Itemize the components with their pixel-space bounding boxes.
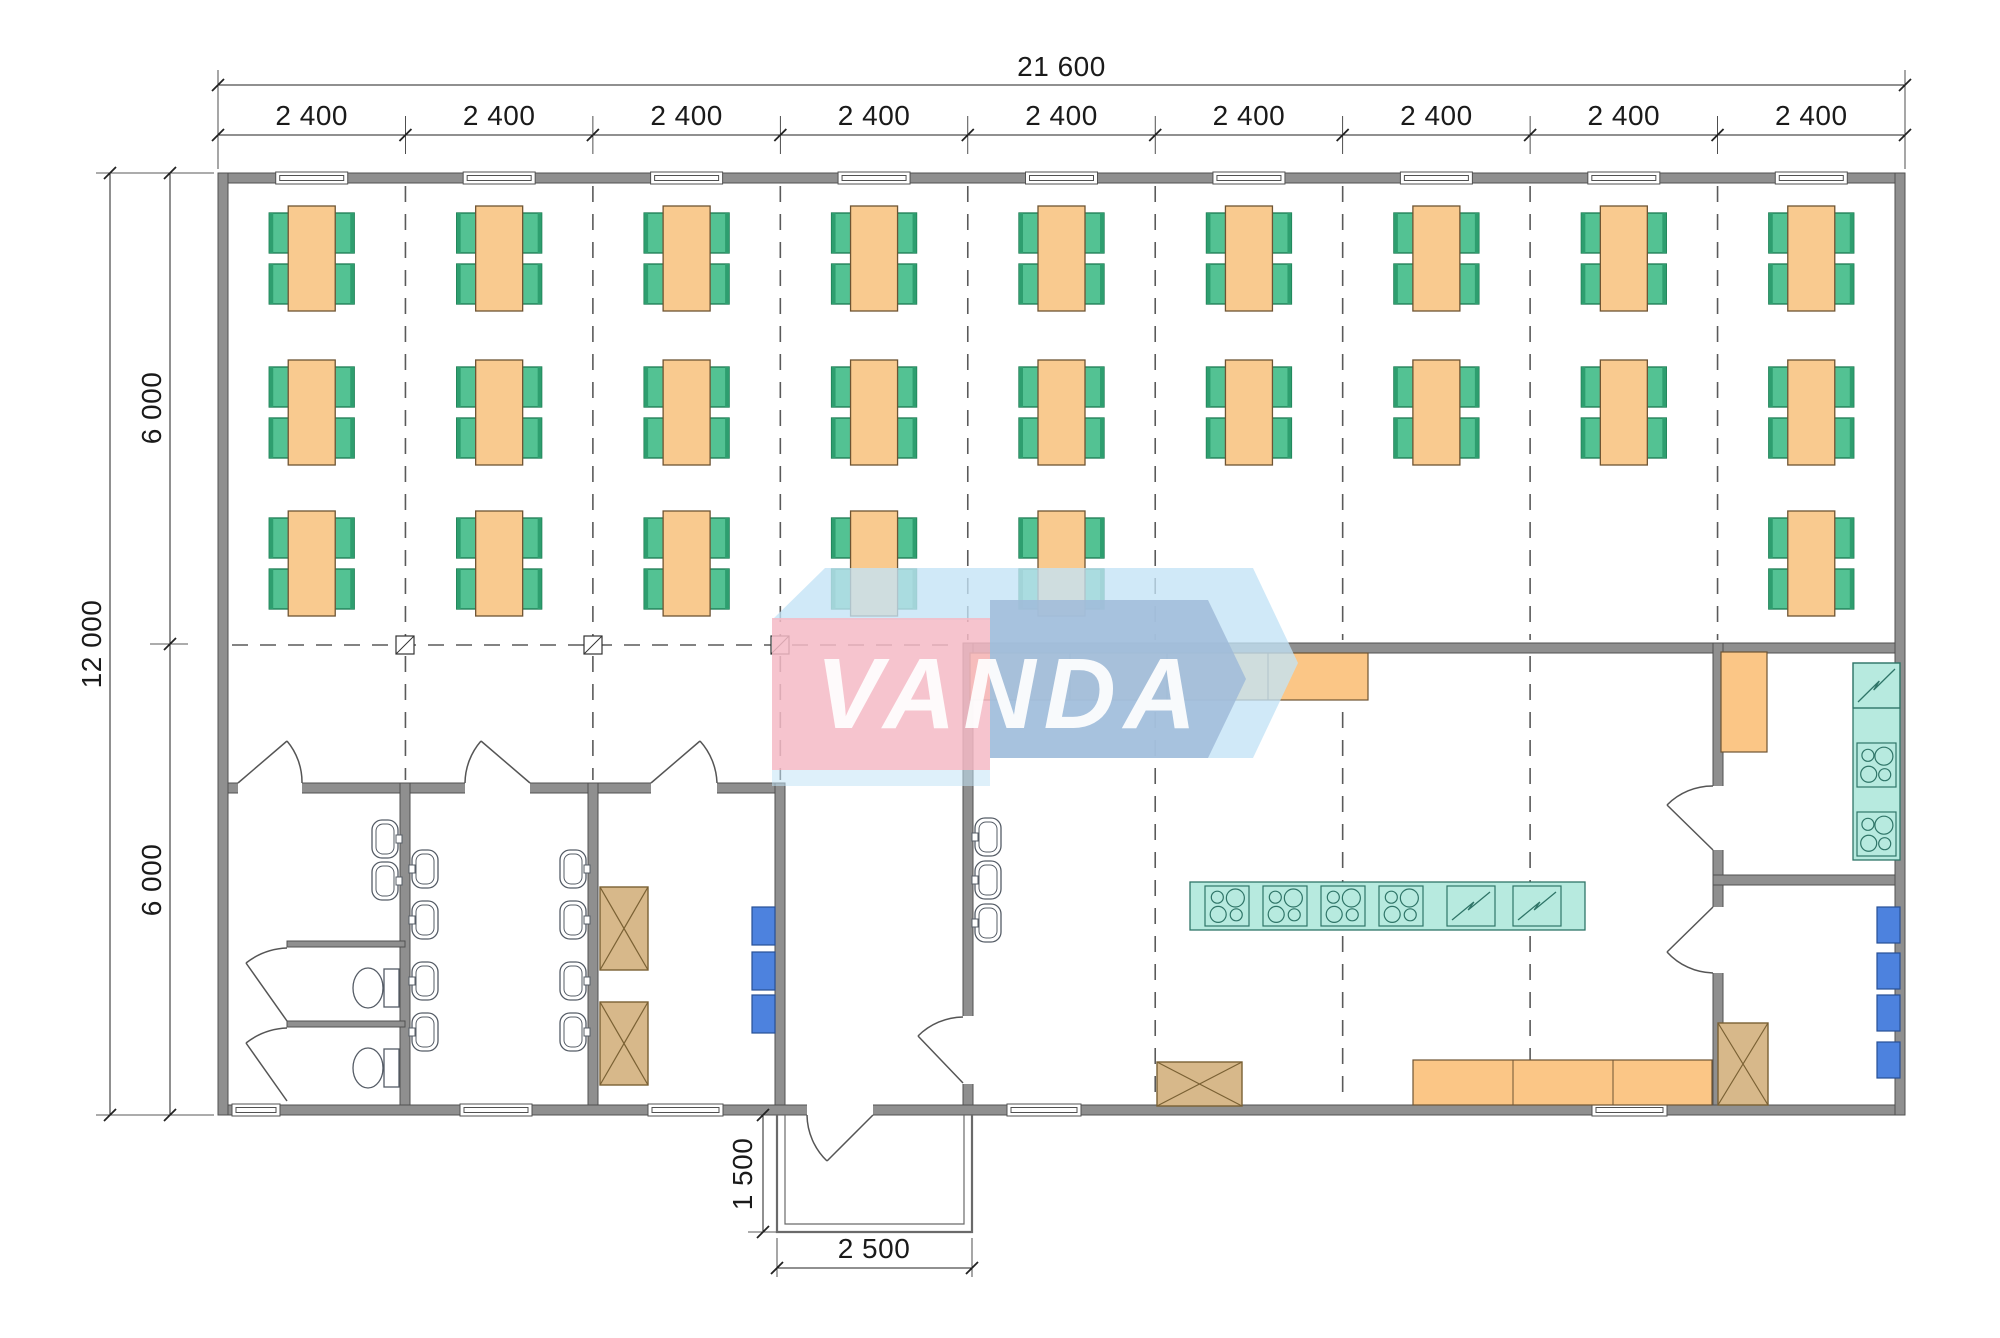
dining-table [1038, 206, 1085, 311]
floor-plan: 21 6002 4002 4002 4002 4002 4002 4002 40… [0, 0, 2000, 1338]
door-leaf [246, 1043, 287, 1101]
door-leaf [1667, 805, 1713, 850]
wall-toilet-stall-1 [287, 941, 405, 947]
dining-table-group [1769, 511, 1854, 616]
blue-cabinet [1877, 995, 1900, 1031]
watermark-backdrop-strip [772, 770, 990, 786]
window [1026, 172, 1098, 184]
chair-backrest [1100, 213, 1104, 253]
wall-partition-washroom [588, 783, 598, 1105]
dimension-label: 2 400 [1213, 100, 1286, 131]
dimension-label: 6 000 [136, 844, 167, 917]
blue-cabinet [1877, 1042, 1900, 1078]
door-main-entrance [807, 1115, 873, 1161]
watermark: VANDA [772, 568, 1298, 786]
wash-basin [409, 1013, 438, 1051]
chair-backrest [1662, 213, 1666, 253]
chair-backrest [350, 569, 354, 609]
chair-backrest [350, 264, 354, 304]
cabinet-storeroom [1721, 652, 1767, 752]
chair-backrest [832, 264, 836, 304]
columns [396, 636, 789, 654]
chair-backrest [1850, 367, 1854, 407]
chair-backrest [1394, 418, 1398, 458]
chair-backrest [1019, 367, 1023, 407]
dining-table-group [1769, 360, 1854, 465]
chair-backrest [1394, 367, 1398, 407]
door-opening [238, 782, 302, 794]
wall-toilet-stall-2 [287, 1021, 405, 1027]
basin-inner [564, 1017, 582, 1047]
window [1007, 1104, 1081, 1116]
chair-backrest [1019, 264, 1023, 304]
chair-backrest [1850, 213, 1854, 253]
door-washroom [465, 741, 530, 783]
tap [972, 833, 978, 841]
window [838, 172, 910, 184]
dining-table-group [269, 511, 354, 616]
wash-basin [560, 1013, 590, 1051]
chair-backrest [1019, 518, 1023, 558]
tap [409, 1028, 415, 1036]
dimension-label: 2 400 [838, 100, 911, 131]
door-kitchen [918, 1017, 963, 1083]
basin-inner [979, 908, 997, 938]
chair-backrest [1769, 213, 1773, 253]
tap [584, 977, 590, 985]
dining-table-group [1206, 360, 1291, 465]
chair-backrest [1475, 213, 1479, 253]
chair-backrest [1769, 367, 1773, 407]
door-swing-arc [287, 741, 302, 783]
crate [1157, 1062, 1242, 1106]
wash-basin [409, 901, 438, 939]
chair-backrest [1475, 367, 1479, 407]
counter-bottom-run [1413, 1060, 1712, 1105]
dining-table-group [1769, 206, 1854, 311]
chair-backrest [913, 367, 917, 407]
basin-inner [376, 824, 394, 854]
chair-backrest [1475, 264, 1479, 304]
chair-backrest [644, 264, 648, 304]
chair-backrest [1850, 569, 1854, 609]
dining-table [288, 511, 335, 616]
chair-backrest [832, 518, 836, 558]
dining-table-group [457, 511, 542, 616]
wall-left [218, 173, 228, 1115]
dining-table [288, 360, 335, 465]
window-glass [842, 176, 906, 181]
window-glass [236, 1108, 276, 1113]
dining-table-group [1581, 360, 1666, 465]
wash-basin [972, 861, 1001, 899]
dining-table [663, 360, 710, 465]
wall-partition-entrance [775, 783, 785, 1105]
window [648, 1104, 723, 1116]
door-swing-arc [465, 741, 481, 783]
toilet-bowl [353, 1048, 383, 1088]
window-glass [1592, 176, 1656, 181]
dining-table-group [1581, 206, 1666, 311]
window-glass [1011, 1108, 1077, 1113]
tap [584, 865, 590, 873]
dimension-label: 2 400 [650, 100, 723, 131]
chair-backrest [457, 264, 461, 304]
window [276, 172, 348, 184]
basin-inner [416, 1017, 434, 1047]
chair-backrest [457, 213, 461, 253]
window-glass [1030, 176, 1094, 181]
chair-backrest [1287, 367, 1291, 407]
dining-table-group [457, 206, 542, 311]
dining-table-group [644, 511, 729, 616]
chair-backrest [1206, 418, 1210, 458]
window [463, 172, 535, 184]
chair-backrest [1287, 213, 1291, 253]
dining-table-group [457, 360, 542, 465]
toilet [353, 1048, 399, 1088]
chair-backrest [538, 213, 542, 253]
watermark-text: VANDA [816, 638, 1204, 750]
chair-backrest [269, 569, 273, 609]
chair-backrest [1581, 213, 1585, 253]
tap [396, 835, 402, 843]
chair-backrest [1287, 418, 1291, 458]
door-opening [1712, 786, 1724, 850]
window-glass [1596, 1108, 1663, 1113]
chair-backrest [1100, 418, 1104, 458]
dining-table [1225, 360, 1272, 465]
tap [584, 1028, 590, 1036]
dining-table [1788, 206, 1835, 311]
chair-backrest [644, 418, 648, 458]
chair-backrest [457, 367, 461, 407]
toilet-bowl [353, 968, 383, 1008]
chair-backrest [269, 213, 273, 253]
dining-table-group [1019, 206, 1104, 311]
door-swing-arc [1667, 786, 1713, 805]
chair-backrest [538, 367, 542, 407]
tap [409, 865, 415, 873]
basin-inner [564, 905, 582, 935]
toilets [353, 968, 399, 1088]
chair-backrest [1394, 213, 1398, 253]
wash-basin [560, 901, 590, 939]
chair-backrest [832, 367, 836, 407]
entrance-porch [777, 1115, 972, 1232]
basin-inner [416, 905, 434, 935]
dimension-label: 2 400 [1775, 100, 1848, 131]
chair-backrest [1206, 213, 1210, 253]
column-symbol [396, 636, 414, 654]
chair-backrest [1100, 367, 1104, 407]
window-glass [1404, 176, 1468, 181]
porch-outer-edge [777, 1115, 972, 1232]
window-glass [1779, 176, 1843, 181]
dining-table [1413, 360, 1460, 465]
door-swing-arc [807, 1115, 827, 1161]
door-toilet-stall-2 [246, 1028, 287, 1101]
tap [396, 877, 402, 885]
window [1592, 1104, 1667, 1116]
wash-basin [372, 862, 402, 900]
door-swing-arc [246, 1028, 287, 1043]
dining-table [288, 206, 335, 311]
chair-backrest [913, 418, 917, 458]
chair-backrest [832, 418, 836, 458]
dining-table [1413, 206, 1460, 311]
chair-backrest [1581, 367, 1585, 407]
porch-inner-edge [785, 1115, 964, 1224]
door-opening [465, 782, 530, 794]
chair-backrest [350, 418, 354, 458]
floor-plan-canvas: 21 6002 4002 4002 4002 4002 4002 4002 40… [0, 0, 2000, 1338]
window-glass [467, 176, 531, 181]
blue-cabinet [752, 952, 775, 990]
wash-basin [560, 850, 590, 888]
chair-backrest [1206, 367, 1210, 407]
wash-basin [372, 820, 402, 858]
window [1400, 172, 1472, 184]
dining-table [1788, 511, 1835, 616]
dining-table [476, 360, 523, 465]
crate [600, 1002, 648, 1085]
chair-backrest [538, 569, 542, 609]
dining-table [1038, 360, 1085, 465]
dining-table [663, 206, 710, 311]
dining-table [1600, 206, 1647, 311]
chair-backrest [644, 569, 648, 609]
door-opening [962, 1016, 974, 1084]
dining-table [663, 511, 710, 616]
basin-inner [416, 966, 434, 996]
door-storeroom-bottom [1667, 907, 1713, 973]
chair-backrest [832, 213, 836, 253]
wash-basins [372, 818, 1001, 1051]
door-toilet-room [238, 741, 302, 783]
dining-table-group [1206, 206, 1291, 311]
chair-backrest [1769, 418, 1773, 458]
toilet-tank [384, 969, 399, 1007]
dining-table-group [269, 360, 354, 465]
dimension-label: 2 500 [838, 1233, 911, 1264]
door-leaf [1667, 907, 1713, 952]
dining-table [476, 511, 523, 616]
chair-backrest [1850, 518, 1854, 558]
chair-backrest [1100, 264, 1104, 304]
chair-backrest [269, 418, 273, 458]
door-leaf [481, 741, 530, 783]
crate [600, 887, 648, 970]
door-leaf [246, 963, 287, 1021]
chair-backrest [538, 418, 542, 458]
chair-backrest [350, 367, 354, 407]
chair-backrest [1394, 264, 1398, 304]
crate [1718, 1023, 1768, 1105]
basin-inner [979, 865, 997, 895]
chair-backrest [538, 518, 542, 558]
chair-backrest [1100, 518, 1104, 558]
chair-backrest [725, 264, 729, 304]
chair-backrest [350, 213, 354, 253]
dining-table [851, 206, 898, 311]
window [651, 172, 723, 184]
door-toilet-stall-1 [246, 948, 287, 1021]
chair-backrest [269, 264, 273, 304]
chair-backrest [644, 367, 648, 407]
chair-backrest [725, 518, 729, 558]
chair-backrest [1662, 367, 1666, 407]
chair-backrest [1581, 264, 1585, 304]
dimension-label: 2 400 [275, 100, 348, 131]
chair-backrest [725, 367, 729, 407]
toilet-tank [384, 1049, 399, 1087]
door-opening [807, 1104, 873, 1116]
dimension-label: 2 400 [1588, 100, 1661, 131]
door-storeroom-top [1667, 786, 1713, 850]
chair-backrest [269, 518, 273, 558]
chair-backrest [725, 569, 729, 609]
chair-backrest [1769, 569, 1773, 609]
blue-cabinet [1877, 953, 1900, 989]
door-swing-arc [1667, 952, 1713, 973]
dining-table-group [1394, 206, 1479, 311]
door-opening [651, 782, 717, 794]
door-swing-arc [918, 1017, 963, 1036]
chair-backrest [725, 418, 729, 458]
chair-backrest [1019, 213, 1023, 253]
chair-backrest [725, 213, 729, 253]
cooking-equipment [1190, 663, 1900, 930]
chair-backrest [1769, 264, 1773, 304]
chair-backrest [1206, 264, 1210, 304]
door-leaf [651, 741, 700, 783]
chair-backrest [1662, 418, 1666, 458]
dining-table-group [269, 206, 354, 311]
chair-backrest [269, 367, 273, 407]
chair-backrest [457, 418, 461, 458]
blue-cabinet [752, 995, 775, 1033]
dimension-label: 2 400 [1025, 100, 1098, 131]
wall-right-rooms-divider [1713, 875, 1895, 885]
chair-backrest [1581, 418, 1585, 458]
window-glass [652, 1108, 719, 1113]
window [1775, 172, 1847, 184]
dimension-label: 21 600 [1017, 51, 1106, 82]
door-leaf [238, 741, 287, 783]
chair-backrest [644, 518, 648, 558]
tap [972, 876, 978, 884]
dining-table [1788, 360, 1835, 465]
dimension-label: 12 000 [76, 600, 107, 689]
dining-table-group [644, 360, 729, 465]
basin-inner [564, 854, 582, 884]
window [232, 1104, 280, 1116]
door-swing-arc [246, 948, 287, 963]
door-leaf [827, 1115, 873, 1161]
chair-backrest [1769, 518, 1773, 558]
door-second-washroom [651, 741, 717, 783]
chair-backrest [457, 518, 461, 558]
dining-table-group [1019, 360, 1104, 465]
window-glass [655, 176, 719, 181]
window [1213, 172, 1285, 184]
tap [409, 916, 415, 924]
toilet [353, 968, 399, 1008]
wash-basin [409, 850, 438, 888]
chair-backrest [913, 518, 917, 558]
basin-inner [564, 966, 582, 996]
dimension-label: 2 400 [463, 100, 536, 131]
basin-inner [376, 866, 394, 896]
dining-table-group [832, 206, 917, 311]
dining-table-group [1394, 360, 1479, 465]
column-symbol [584, 636, 602, 654]
chair-backrest [457, 569, 461, 609]
chair-backrest [913, 264, 917, 304]
chair-backrest [1019, 418, 1023, 458]
window-glass [280, 176, 344, 181]
chair-backrest [1662, 264, 1666, 304]
chair-backrest [1287, 264, 1291, 304]
chair-backrest [913, 213, 917, 253]
dining-table [476, 206, 523, 311]
window [1588, 172, 1660, 184]
chair-backrest [1475, 418, 1479, 458]
basin-inner [416, 854, 434, 884]
dining-table [1600, 360, 1647, 465]
dining-table-group [644, 206, 729, 311]
chair-backrest [1850, 418, 1854, 458]
window-glass [1217, 176, 1281, 181]
chair-backrest [538, 264, 542, 304]
dimension-label: 6 000 [136, 372, 167, 445]
window-glass [464, 1108, 528, 1113]
dining-area [269, 206, 1854, 616]
wash-basin [972, 818, 1001, 856]
wash-basin [560, 962, 590, 1000]
basin-inner [979, 822, 997, 852]
wash-basin [972, 904, 1001, 942]
dining-table [1225, 206, 1272, 311]
dining-table-group [832, 360, 917, 465]
chair-backrest [644, 213, 648, 253]
blue-cabinet [752, 907, 775, 945]
blue-cabinet [1877, 907, 1900, 943]
chair-backrest [1850, 264, 1854, 304]
tap [584, 916, 590, 924]
chair-backrest [350, 518, 354, 558]
wash-basin [409, 962, 438, 1000]
dining-table [851, 360, 898, 465]
door-opening [1712, 907, 1724, 973]
dimension-label: 2 400 [1400, 100, 1473, 131]
tap [409, 977, 415, 985]
door-swing-arc [700, 741, 717, 783]
dimension-label: 1 500 [727, 1138, 758, 1211]
tap [972, 919, 978, 927]
door-leaf [918, 1036, 963, 1083]
window [460, 1104, 532, 1116]
cooking-column-storeroom [1853, 663, 1900, 860]
